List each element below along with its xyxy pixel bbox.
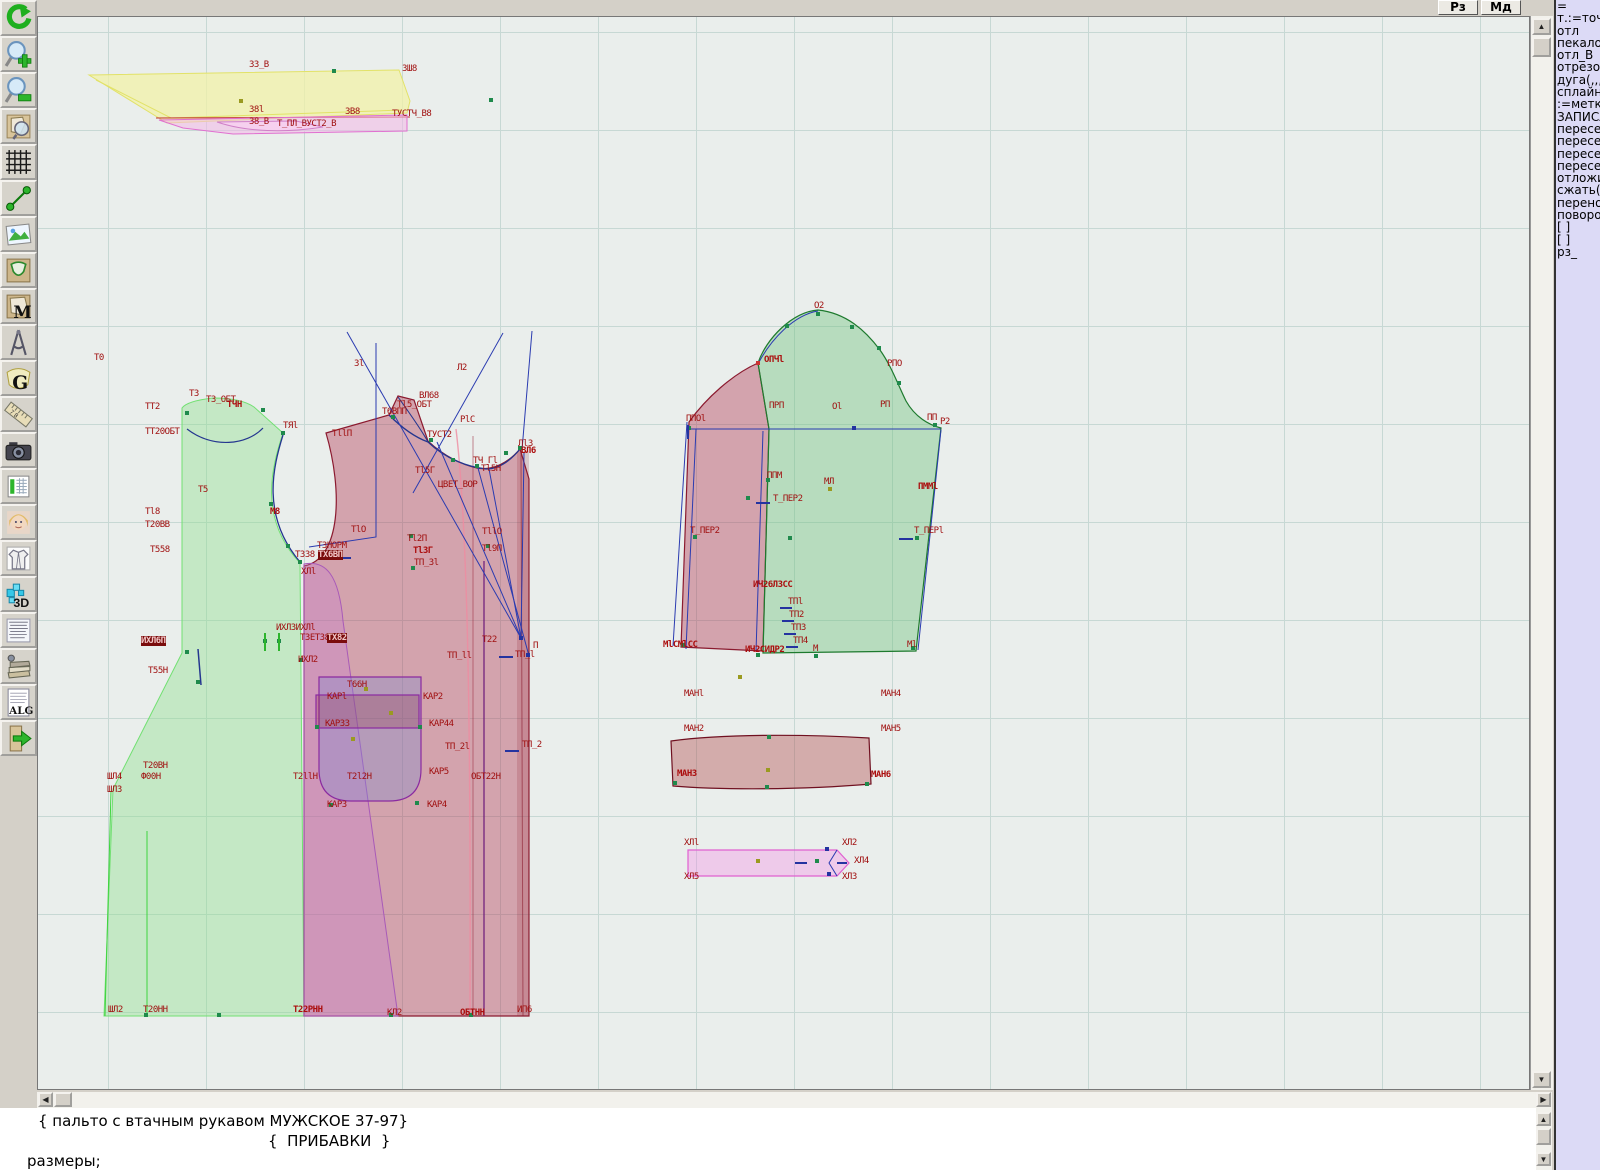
pattern-label: РПО (887, 359, 902, 369)
pattern-label: Тl5Н (481, 464, 501, 474)
pattern-label: ТП_Зl (414, 558, 439, 568)
pattern-label: ПРП (769, 401, 784, 411)
pattern-label: ТУСТ2 (427, 430, 452, 440)
editor-line: размеры; (27, 1152, 101, 1170)
pattern-label: ТЧН (227, 400, 242, 410)
toolbar-undo-button[interactable] (0, 0, 37, 36)
pattern-point (877, 346, 881, 350)
pattern-label: ШЛ3 (107, 785, 122, 795)
top-strip: Рз Мд (37, 0, 1554, 16)
vertical-scrollbar[interactable]: ▲ ▼ (1530, 16, 1553, 1090)
pattern-label: З8l (249, 105, 264, 115)
pattern-cad-app: { "window": { "rz_button": "Рз", "md_but… (0, 0, 1600, 1170)
tick-mark (499, 656, 513, 658)
pattern-point (850, 325, 854, 329)
command-item[interactable]: пересеч (1556, 148, 1600, 160)
pattern-label: ТП3 (791, 623, 806, 633)
pattern-point (286, 544, 290, 548)
left-toolbar: M G 7 8 3D ALG (0, 0, 37, 1106)
pattern-label: ТХ82 (327, 633, 347, 643)
toolbar-camera-button[interactable] (0, 432, 37, 468)
command-item[interactable]: [ ] (1556, 221, 1600, 233)
pattern-label: Т55Н (148, 666, 168, 676)
pattern-label: Т20НН (143, 1005, 168, 1015)
pattern-label: МАН6 (871, 770, 891, 780)
horizontal-scroll-thumb[interactable] (54, 1092, 72, 1107)
pattern-label: Т_ПЕР2 (690, 526, 720, 536)
ruler-icon: 7 8 (4, 400, 33, 429)
table-icon (4, 472, 33, 501)
pattern-label: Т5 (198, 485, 208, 495)
pattern-point (756, 361, 760, 365)
portrait-icon (4, 508, 33, 537)
pattern-label: МАН5 (881, 724, 901, 734)
pattern-point (415, 801, 419, 805)
toolbar-grid-button[interactable] (0, 144, 37, 180)
undo-icon (4, 4, 33, 33)
pattern-label: КАР33 (325, 719, 350, 729)
grid-icon (4, 148, 33, 177)
pattern-m-icon: M (4, 292, 33, 321)
pattern-label: ТП2 (789, 610, 804, 620)
pattern-point (765, 785, 769, 789)
pattern-point (767, 735, 771, 739)
pattern-label: МАН4 (881, 689, 901, 699)
toolbar-portrait-button[interactable] (0, 504, 37, 540)
pattern-point (816, 312, 820, 316)
pattern-label: РП (880, 400, 890, 410)
pattern-label: Мl (907, 640, 917, 650)
svg-text:G: G (12, 371, 28, 392)
toolbar-ruler-button[interactable]: 7 8 (0, 396, 37, 432)
pattern-point (785, 324, 789, 328)
algorithm-text-editor[interactable]: { пальто с втачным рукавом МУЖСКОЕ 37-97… (0, 1108, 1536, 1170)
toolbar-line-tool-button[interactable] (0, 180, 37, 216)
rz-button[interactable]: Рз (1438, 0, 1478, 15)
toolbar-zoom-in-button[interactable] (0, 36, 37, 72)
pattern-label: Зl (354, 359, 364, 369)
pattern-label: КАР44 (429, 719, 454, 729)
pattern-label: МАНl (684, 689, 704, 699)
zoom-out-icon (4, 76, 33, 105)
pattern-point (196, 680, 200, 684)
tick-mark (264, 633, 266, 651)
pattern-point (489, 98, 493, 102)
pattern-label: Тl5Г (415, 466, 435, 476)
editor-scroll-up-button[interactable]: ▲ (1536, 1112, 1551, 1126)
tick-mark (687, 425, 689, 439)
pattern-point (418, 725, 422, 729)
tick-mark (837, 862, 847, 864)
pattern-point (261, 408, 265, 412)
pattern-label: ЗШ8 (402, 64, 417, 74)
pattern-point (814, 654, 818, 658)
pattern-label: ТХ6ВП (318, 550, 343, 560)
pattern-label: ТП_2 (522, 740, 542, 750)
pattern-label: ТТ20ОБТ (145, 427, 179, 437)
command-item[interactable]: сжать(() (1556, 184, 1600, 196)
pattern-label: Т66Н (347, 680, 367, 690)
pattern-label: О2 (814, 301, 824, 311)
toolbar-compass-button[interactable] (0, 324, 37, 360)
pattern-label: Тl9П (482, 544, 502, 554)
pattern-label: Оl (832, 402, 842, 412)
svg-text:3D: 3D (13, 595, 29, 608)
pattern-label: Т6ВПП (382, 407, 407, 417)
command-item[interactable]: т.:=точка (1556, 12, 1600, 24)
pattern-label: М (813, 644, 818, 654)
pattern-point (756, 859, 760, 863)
preview-pattern-icon (4, 112, 33, 141)
pattern-label: Т_ПЛ_ВУСТ2_В (277, 119, 336, 129)
pattern-point (239, 99, 243, 103)
pattern-point (788, 536, 792, 540)
command-item[interactable]: отрезок (1556, 61, 1600, 73)
pattern-label: ХЛl (684, 838, 699, 848)
pattern-label: ППМ (767, 471, 782, 481)
alg-document-icon: ALG (4, 688, 33, 717)
books-icon (4, 652, 33, 681)
garment-sketch-icon (4, 544, 33, 573)
pattern-point (673, 781, 677, 785)
pattern-label: Р2 (940, 417, 950, 427)
pattern-label: ТТ2 (145, 402, 160, 412)
pattern-point (332, 69, 336, 73)
pattern-point (738, 675, 742, 679)
pattern-label: Т22РНН (293, 1005, 323, 1015)
pattern-label: ТllО (482, 527, 502, 537)
pattern-point (269, 502, 273, 506)
exit-icon (4, 724, 33, 753)
pattern-piece-icon (4, 256, 33, 285)
pattern-label: Т2l2Н (347, 772, 372, 782)
pattern-label: КЛ2 (387, 1008, 402, 1018)
pattern-label: МЛ (824, 477, 834, 487)
pattern-point (827, 872, 831, 876)
editor-scroll-thumb[interactable] (1536, 1128, 1551, 1145)
pattern-label: ЗВ8 (345, 107, 360, 117)
command-item[interactable]: рз_ (1556, 246, 1600, 258)
pattern-point (298, 560, 302, 564)
pattern-label: П (533, 641, 538, 651)
pattern-label: ТЯl (283, 421, 298, 431)
pattern-label: ЦВЕТ_ВОР (438, 480, 477, 490)
pattern-canvas[interactable]: З3_ВЗШ8З8lЗВ8ТУСТЧ_В8З8_ВТ_ПЛ_ВУСТ2_ВТ0Т… (37, 16, 1530, 1090)
editor-line: { ПРИБАВКИ } (268, 1132, 390, 1150)
pattern-label: Т558 (150, 545, 170, 555)
pattern-label: КАРl (327, 692, 347, 702)
toolbar-image-button[interactable] (0, 216, 37, 252)
toolbar-g-tool-button[interactable]: G (0, 360, 37, 396)
toolbar-3d-button[interactable]: 3D (0, 576, 37, 612)
pattern-point (825, 847, 829, 851)
pattern-label: Т_ПЕРl (914, 526, 944, 536)
command-list: =т.:=точкаотлпекалоотл_Вотрезокдуга(,,,)… (1556, 0, 1600, 258)
pattern-label: ХЛ2 (842, 838, 857, 848)
pattern-label: Тl8 (145, 507, 160, 517)
pattern-label: ПП (927, 413, 937, 423)
tick-mark (505, 750, 519, 752)
pattern-label: Т22 (482, 635, 497, 645)
pattern-label: Л2 (457, 363, 467, 373)
pattern-point (828, 487, 832, 491)
pattern-label: Т3 (189, 389, 199, 399)
pattern-label: РlС (460, 415, 475, 425)
toolbar-garment-button[interactable] (0, 540, 37, 576)
pattern-label: ТП4 (793, 636, 808, 646)
pattern-point (815, 859, 819, 863)
pattern-label: ИЧ2СИДР2 (745, 645, 784, 655)
toolbar-alg-button[interactable]: ALG (0, 684, 37, 720)
pattern-label: ХЛ5 (684, 872, 699, 882)
pattern-label: МАН3 (677, 769, 697, 779)
compass-icon (4, 328, 33, 357)
pattern-label: Т_ПЕР2 (773, 494, 803, 504)
three-d-icon: 3D (4, 580, 33, 609)
pattern-label: Т2llН (293, 772, 318, 782)
toolbar-preview-button[interactable] (0, 108, 37, 144)
toolbar-pattern-m-button[interactable]: M (0, 288, 37, 324)
pattern-label: ОПЧl (764, 355, 784, 365)
camera-icon (4, 436, 33, 465)
tick-mark (795, 862, 807, 864)
pattern-point (915, 536, 919, 540)
pattern-label: КАР2 (423, 692, 443, 702)
svg-text:ALG: ALG (8, 704, 33, 716)
command-item[interactable]: :=метка (1556, 98, 1600, 110)
pattern-label: ШЛ4 (107, 772, 122, 782)
pattern-point (217, 1013, 221, 1017)
pattern-label: Т20ВН (143, 761, 168, 771)
tick-mark (278, 633, 280, 651)
zoom-in-icon (4, 40, 33, 69)
pattern-label: М8 (270, 507, 280, 517)
toolbar-zoom-out-button[interactable] (0, 72, 37, 108)
toolbar-text-list-button[interactable] (0, 612, 37, 648)
toolbar-books-button[interactable] (0, 648, 37, 684)
pattern-point (746, 496, 750, 500)
pattern-label: ИЧ26ЛЗСС (753, 580, 792, 590)
toolbar-pattern-button[interactable] (0, 252, 37, 288)
pattern-label: КАР4 (427, 800, 447, 810)
tick-mark (782, 620, 794, 622)
pattern-label: КАР5 (429, 767, 449, 777)
pattern-label: ХЛl (301, 567, 316, 577)
tick-mark (786, 646, 798, 648)
pattern-point (185, 411, 189, 415)
pattern-point (281, 431, 285, 435)
tick-mark (756, 502, 770, 504)
pattern-label: МlСМlСС (663, 640, 697, 650)
pattern-label: ПММl (918, 482, 938, 492)
pattern-point (852, 426, 856, 430)
pattern-label: ШЛ2 (108, 1005, 123, 1015)
pattern-label: ИП6 (517, 1005, 532, 1015)
pattern-point (519, 636, 523, 640)
pattern-label: ТП_2l (445, 742, 470, 752)
pattern-label: Т338 (295, 550, 315, 560)
toolbar-table-button[interactable] (0, 468, 37, 504)
pattern-label: ОБТНН (460, 1008, 485, 1018)
scroll-down-button[interactable]: ▼ (1532, 1071, 1551, 1088)
pattern-point (185, 650, 189, 654)
pattern-label: Т3ЕТ38 (300, 633, 330, 643)
md-button[interactable]: Мд (1481, 0, 1521, 15)
pattern-point (504, 451, 508, 455)
pattern-label: ТП_l (515, 650, 535, 660)
scroll-left-button[interactable]: ◀ (38, 1092, 53, 1107)
pattern-point (351, 737, 355, 741)
tick-mark (784, 633, 796, 635)
toolbar-exit-button[interactable] (0, 720, 37, 756)
pattern-label: Т0 (94, 353, 104, 363)
pattern-label: ОБТ22Н (471, 772, 501, 782)
pattern-label: ТlО (351, 525, 366, 535)
pattern-label: Т20ВВ (145, 520, 170, 530)
pattern-label: ВЛ6 (521, 446, 536, 456)
pattern-point (897, 381, 901, 385)
line-tool-icon (4, 184, 33, 213)
command-item[interactable]: пересеч (1556, 135, 1600, 147)
scroll-up-button[interactable]: ▲ (1532, 18, 1551, 35)
command-panel[interactable]: =т.:=точкаотлпекалоотл_Вотрезокдуга(,,,)… (1554, 0, 1600, 1170)
pattern-point (933, 423, 937, 427)
pattern-label: ТllП (332, 429, 352, 439)
pattern-label: ТПl (788, 597, 803, 607)
pattern-point (865, 782, 869, 786)
scroll-right-button[interactable]: ▶ (1536, 1092, 1551, 1107)
pattern-label: ППОl (686, 414, 706, 424)
vertical-scroll-thumb[interactable] (1532, 37, 1551, 57)
pattern-label: ИХЛ6П (141, 636, 166, 646)
pattern-label: ХЛ4 (854, 856, 869, 866)
pattern-label: ТlЗГ (413, 546, 433, 556)
editor-scroll-down-button[interactable]: ▼ (1536, 1152, 1551, 1166)
pattern-point (389, 711, 393, 715)
tick-mark (899, 538, 913, 540)
pattern-point (766, 768, 770, 772)
pattern-label: КАР3 (327, 800, 347, 810)
g-tool-icon: G (4, 364, 33, 393)
horizontal-scrollbar[interactable]: ◀ ▶ (37, 1092, 1552, 1108)
pattern-label: ТП_ll (447, 651, 472, 661)
text-document-icon (4, 616, 33, 645)
pattern-label: Ф00Н (141, 772, 161, 782)
tick-mark (780, 607, 792, 609)
pattern-point (315, 725, 319, 729)
pattern-label: Тl2П (407, 534, 427, 544)
image-icon (4, 220, 33, 249)
pattern-label: ХЛ3 (842, 872, 857, 882)
pattern-label: ИХЛ2 (298, 655, 318, 665)
pattern-label: ТУСТЧ_В8 (392, 109, 431, 119)
pattern-label: МАН2 (684, 724, 704, 734)
svg-text:M: M (13, 301, 31, 320)
editor-scrollbar[interactable]: ▲ ▼ (1536, 1108, 1552, 1170)
labels-layer: З3_ВЗШ8З8lЗВ8ТУСТЧ_В8З8_ВТ_ПЛ_ВУСТ2_ВТ0Т… (38, 17, 1529, 1089)
pattern-label: З8_В (249, 117, 269, 127)
pattern-point (451, 458, 455, 462)
editor-line: { пальто с втачным рукавом МУЖСКОЕ 37-97… (38, 1112, 408, 1130)
pattern-label: З3_В (249, 60, 269, 70)
pattern-label: ИХЛЗИХЛl (276, 623, 315, 633)
